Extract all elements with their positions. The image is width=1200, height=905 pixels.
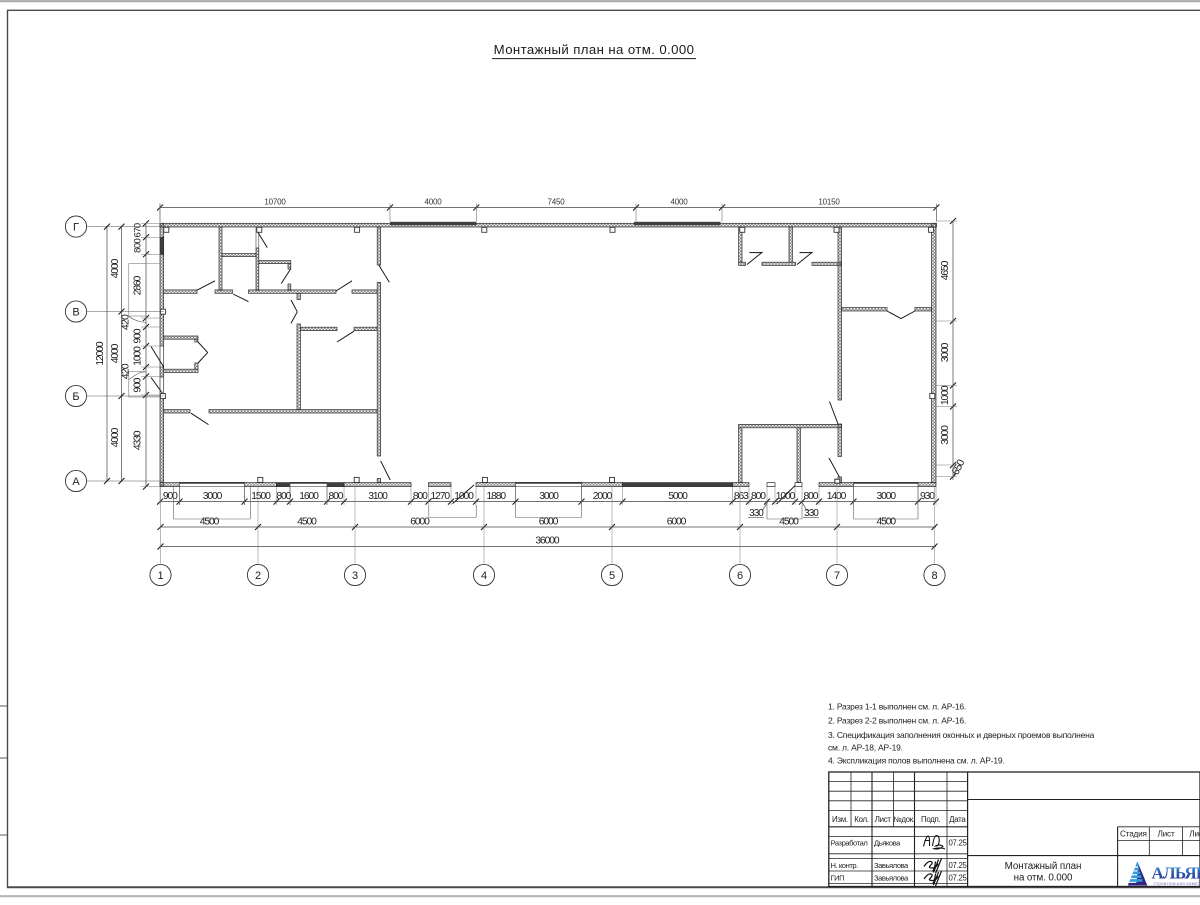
svg-text:Н. контр.: Н. контр. — [831, 861, 859, 870]
svg-text:4500: 4500 — [877, 516, 897, 527]
svg-text:4500: 4500 — [779, 516, 799, 527]
svg-text:07.25: 07.25 — [949, 874, 968, 883]
svg-text:4000: 4000 — [110, 343, 121, 363]
svg-text:930: 930 — [920, 491, 935, 502]
svg-text:Лист: Лист — [875, 815, 892, 824]
svg-text:1270: 1270 — [431, 491, 451, 502]
svg-text:ГИП: ГИП — [831, 874, 845, 883]
svg-text:900: 900 — [133, 377, 144, 392]
svg-text:4330: 4330 — [133, 430, 144, 450]
svg-text:Дьякова: Дьякова — [874, 839, 901, 848]
svg-text:420: 420 — [120, 314, 132, 330]
svg-text:07.25: 07.25 — [949, 861, 968, 870]
svg-text:4000: 4000 — [110, 427, 121, 447]
svg-text:5: 5 — [609, 570, 615, 582]
svg-text:6000: 6000 — [410, 516, 430, 527]
svg-text:2. Разрез 2-2 выполнен см. л.: 2. Разрез 2-2 выполнен см. л. АР-16. — [828, 716, 966, 726]
svg-text:Монтажный план на отм. 0.000: Монтажный план на отм. 0.000 — [494, 42, 695, 57]
svg-text:36000: 36000 — [535, 535, 560, 546]
svg-text:4650: 4650 — [940, 260, 951, 280]
svg-text:строительная компания: строительная компания — [1154, 881, 1200, 886]
svg-text:3000: 3000 — [203, 491, 223, 502]
svg-text:4500: 4500 — [297, 516, 317, 527]
svg-text:800: 800 — [804, 491, 819, 502]
svg-text:3: 3 — [352, 570, 358, 582]
svg-text:1400: 1400 — [827, 491, 847, 502]
svg-text:6000: 6000 — [667, 516, 687, 527]
svg-text:8: 8 — [931, 570, 937, 582]
svg-text:4000: 4000 — [671, 198, 689, 207]
svg-text:800: 800 — [276, 491, 291, 502]
svg-text:см. л. АР-18, АР-19.: см. л. АР-18, АР-19. — [828, 743, 903, 753]
svg-text:1. Разрез 1-1 выполнен см. л.: 1. Разрез 1-1 выполнен см. л. АР-16. — [828, 702, 966, 712]
svg-text:Завьялова: Завьялова — [874, 874, 909, 883]
svg-text:на отм. 0.000: на отм. 0.000 — [1014, 873, 1073, 884]
svg-text:Лист: Лист — [1158, 830, 1175, 839]
svg-text:4000: 4000 — [425, 198, 443, 207]
svg-text:2860: 2860 — [133, 275, 144, 295]
svg-text:Разработал: Разработал — [831, 839, 868, 848]
svg-text:3000: 3000 — [877, 491, 897, 502]
svg-text:Изм.: Изм. — [832, 815, 848, 824]
svg-text:1500: 1500 — [251, 491, 271, 502]
svg-text:12000: 12000 — [95, 341, 106, 366]
svg-text:1000: 1000 — [454, 491, 474, 502]
svg-text:3000: 3000 — [940, 342, 951, 362]
svg-text:7450: 7450 — [548, 198, 566, 207]
svg-text:800: 800 — [133, 238, 144, 252]
svg-text:863: 863 — [734, 491, 749, 502]
svg-text:3100: 3100 — [368, 491, 388, 502]
svg-text:АЛЬЯНС: АЛЬЯНС — [1152, 864, 1200, 883]
svg-text:А: А — [72, 476, 80, 488]
svg-text:Б: Б — [72, 391, 79, 403]
svg-text:6000: 6000 — [539, 516, 559, 527]
svg-text:5000: 5000 — [668, 491, 688, 502]
svg-text:670: 670 — [133, 223, 144, 237]
svg-text:1: 1 — [157, 570, 163, 582]
svg-text:Лис: Лис — [1189, 830, 1200, 839]
svg-text:4. Экспликация полов выполнена: 4. Экспликация полов выполнена см. л. АР… — [828, 756, 1005, 766]
svg-text:Г: Г — [73, 222, 79, 234]
svg-text:800: 800 — [413, 491, 428, 502]
svg-text:Завьялова: Завьялова — [874, 861, 909, 870]
svg-text:6: 6 — [737, 570, 743, 582]
svg-text:Монтажный план: Монтажный план — [1005, 861, 1082, 872]
svg-text:Подп.: Подп. — [921, 815, 941, 824]
svg-text:Кол.: Кол. — [854, 815, 869, 824]
svg-text:800: 800 — [751, 491, 766, 502]
svg-text:10150: 10150 — [818, 198, 840, 207]
svg-text:800: 800 — [329, 491, 344, 502]
svg-text:2: 2 — [255, 570, 261, 582]
svg-text:3000: 3000 — [539, 491, 559, 502]
svg-text:3. Спецификация заполнения око: 3. Спецификация заполнения оконных и две… — [828, 730, 1095, 740]
svg-text:1880: 1880 — [487, 491, 507, 502]
svg-text:4: 4 — [481, 570, 487, 582]
svg-text:4000: 4000 — [110, 258, 121, 278]
svg-text:07.25: 07.25 — [949, 839, 968, 848]
svg-text:В: В — [72, 307, 79, 319]
svg-text:Дата: Дата — [949, 815, 966, 824]
svg-text:№док.: №док. — [893, 815, 915, 824]
svg-text:1000: 1000 — [133, 346, 144, 366]
svg-text:1600: 1600 — [299, 491, 319, 502]
svg-text:4500: 4500 — [200, 516, 220, 527]
svg-text:420: 420 — [120, 363, 132, 379]
svg-text:2000: 2000 — [593, 491, 613, 502]
svg-text:1000: 1000 — [940, 385, 951, 405]
svg-text:1000: 1000 — [776, 491, 796, 502]
svg-text:3000: 3000 — [940, 425, 951, 445]
svg-text:900: 900 — [133, 328, 144, 343]
svg-text:10700: 10700 — [264, 198, 286, 207]
svg-text:900: 900 — [163, 491, 178, 502]
svg-text:7: 7 — [834, 570, 840, 582]
svg-text:Стадия: Стадия — [1120, 830, 1147, 839]
